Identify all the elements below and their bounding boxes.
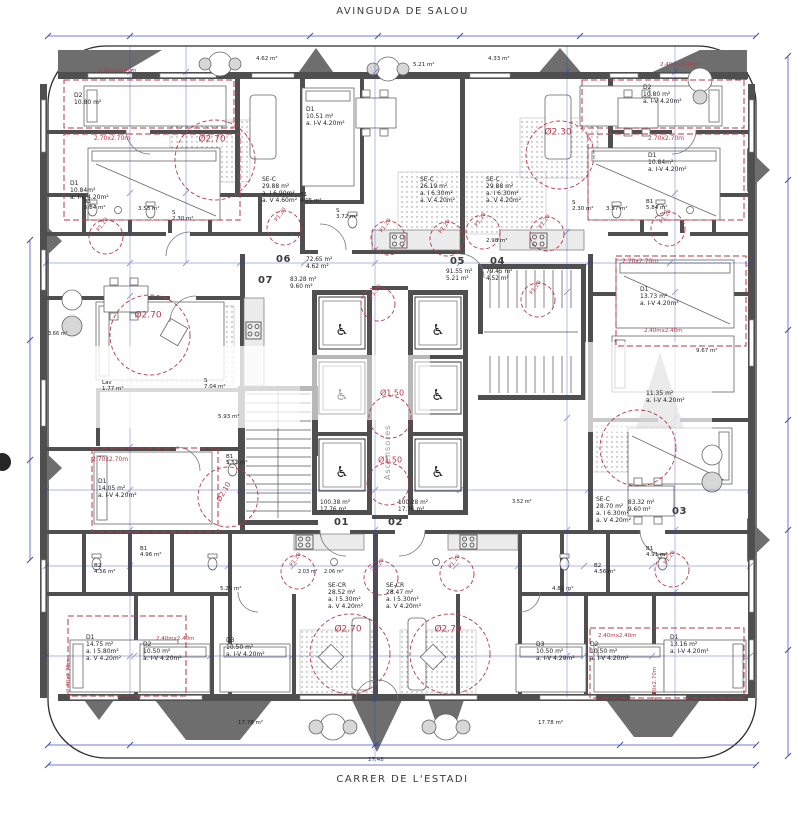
wheelchair-icon: ♿: [335, 321, 348, 339]
turning-circle: [89, 220, 123, 254]
floor-plan-page: ♿♿♿♿♿♿: [0, 0, 805, 814]
turning-circle: [361, 287, 395, 321]
turning-circle: [281, 555, 315, 589]
turning-circle: [367, 463, 409, 505]
watermark: [88, 342, 712, 432]
wheelchair-icon: ♿: [431, 386, 444, 404]
turning-circle: [440, 557, 474, 591]
wheelchair-icon: ♿: [335, 463, 348, 481]
turning-circle: [267, 211, 301, 245]
wheelchair-icon: ♿: [431, 321, 444, 339]
turning-circle: [655, 553, 689, 587]
grid-bubble: [0, 453, 11, 471]
floor-plan-drawing: ♿♿♿♿♿♿: [0, 0, 805, 814]
wheelchair-icon: ♿: [431, 463, 444, 481]
